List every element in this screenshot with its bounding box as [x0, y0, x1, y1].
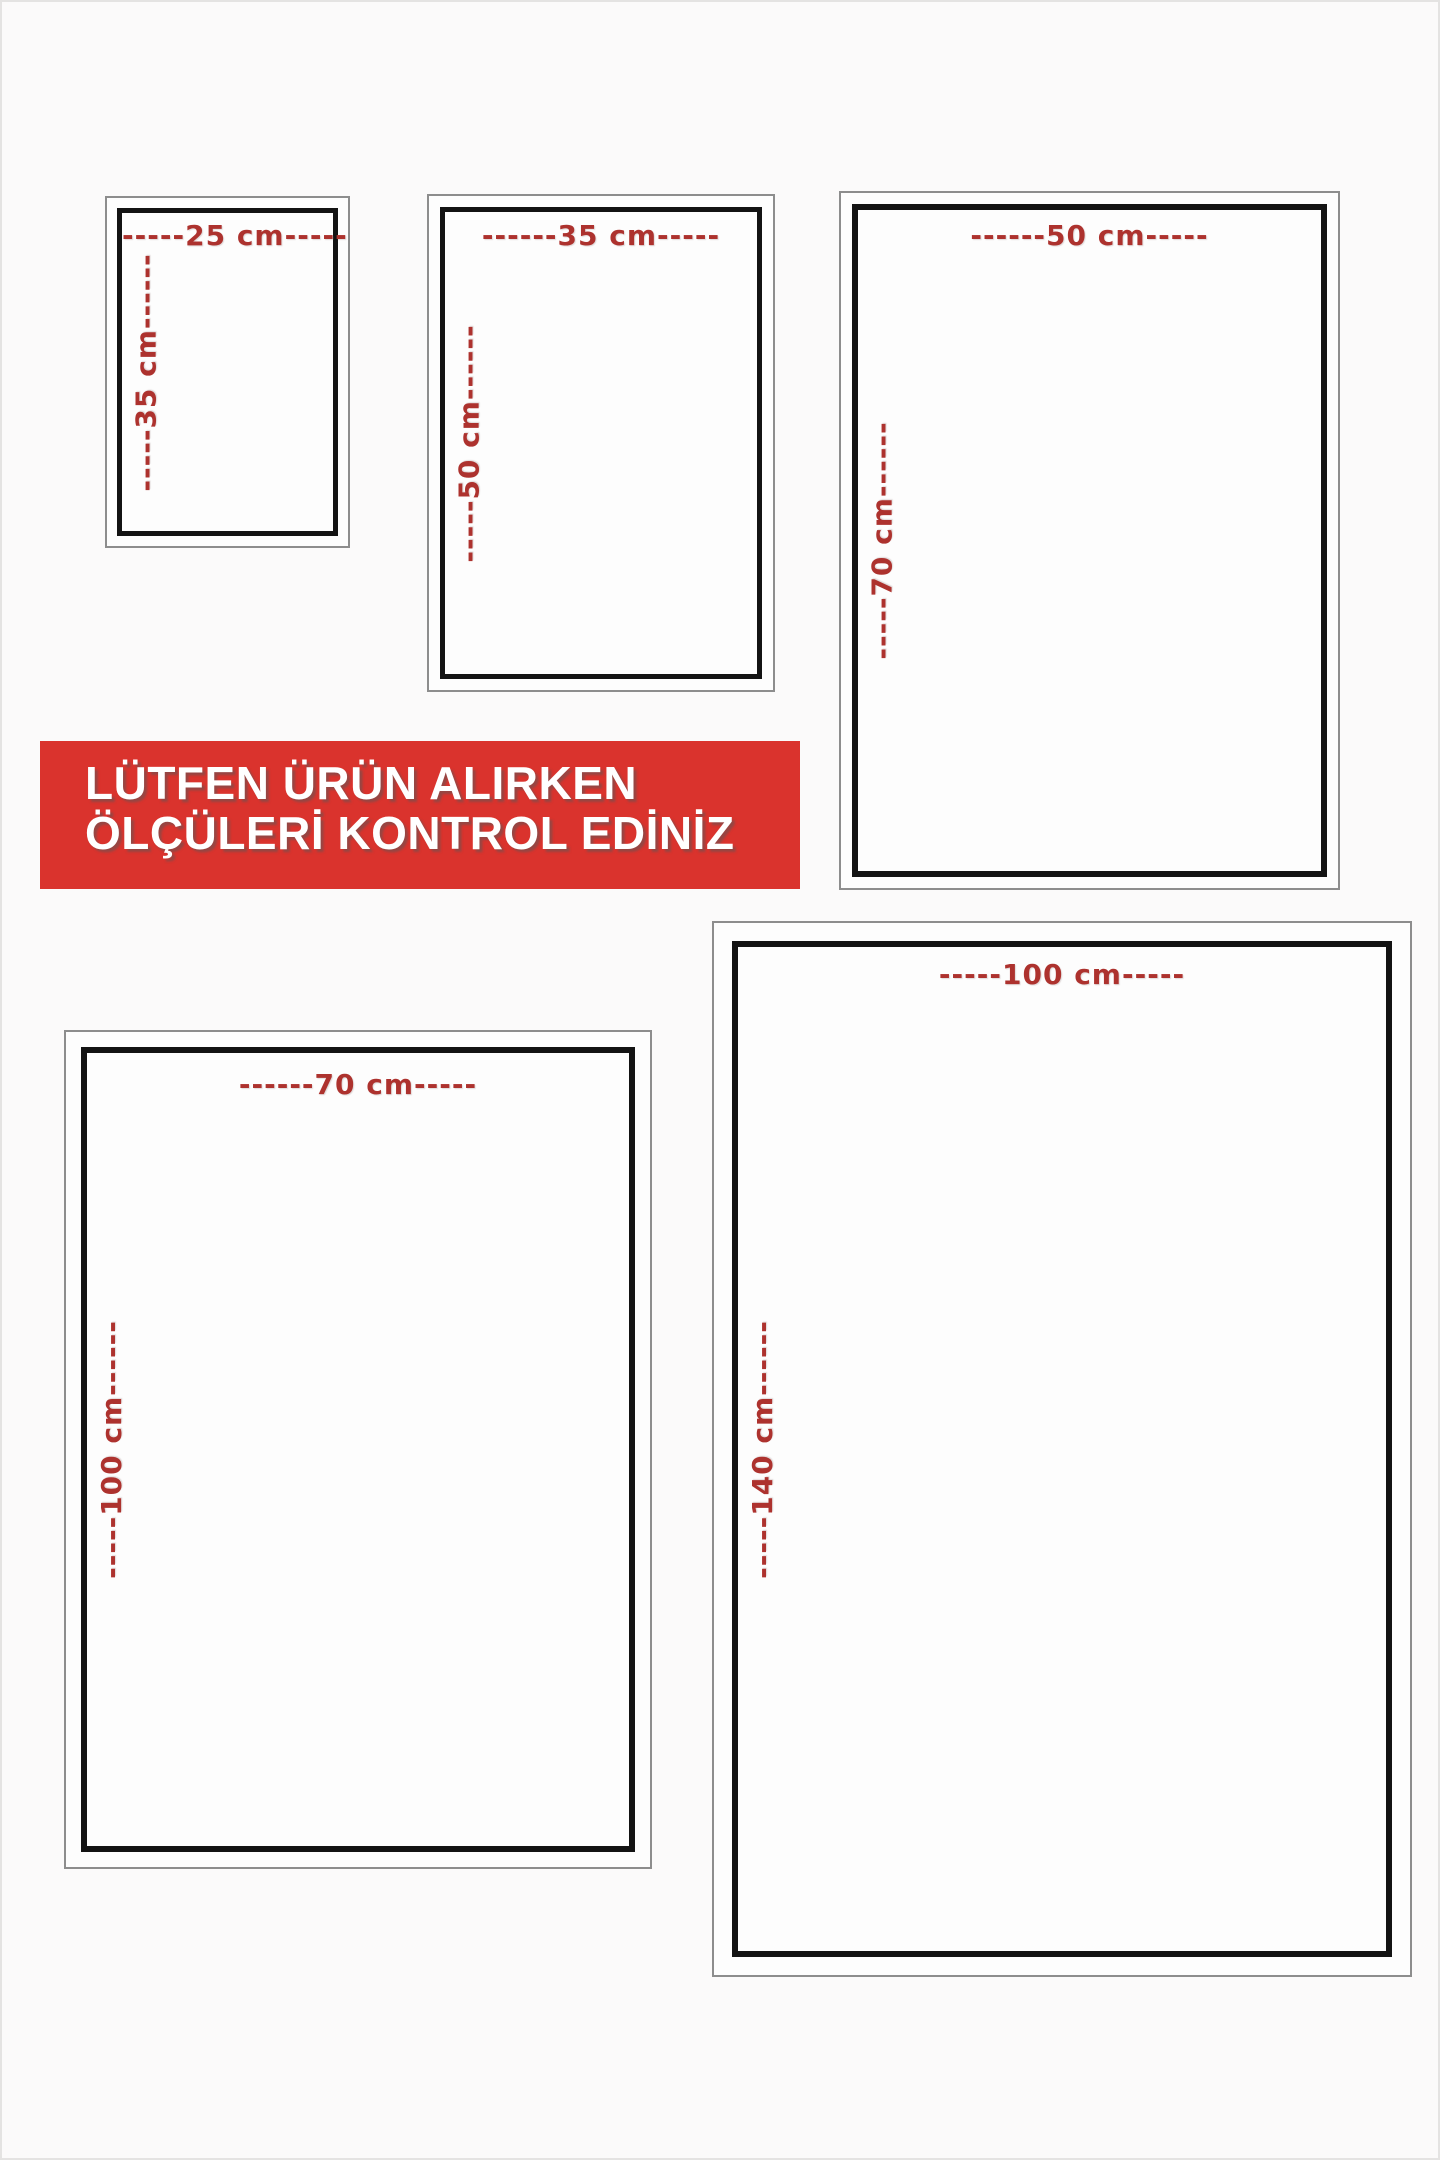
- width-dimension-label: ------50 cm-----: [858, 210, 1321, 252]
- width-dimension-label: ------70 cm-----: [87, 1053, 629, 1101]
- height-dimension-label-wrap: -----50 cm------: [447, 212, 491, 674]
- size-box-25x35: -----25 cm----- -----35 cm------: [105, 196, 350, 548]
- height-dimension-label: -----70 cm------: [866, 421, 899, 659]
- size-box-100x140: -----100 cm----- -----140 cm------: [712, 921, 1412, 1977]
- width-dimension-label: -----25 cm-----: [122, 213, 333, 252]
- inner-frame: ------70 cm----- -----100 cm------: [81, 1047, 635, 1852]
- warning-line-2: ÖLÇÜLERİ KONTROL EDİNİZ: [85, 808, 800, 858]
- inner-frame: ------35 cm----- -----50 cm------: [440, 207, 762, 679]
- height-dimension-label-wrap: -----100 cm------: [89, 1053, 133, 1846]
- height-dimension-label-wrap: -----35 cm------: [124, 213, 168, 531]
- inner-frame: ------50 cm----- -----70 cm------: [852, 204, 1327, 877]
- height-dimension-label-wrap: -----140 cm------: [740, 947, 784, 1951]
- height-dimension-label: -----100 cm------: [95, 1320, 128, 1579]
- size-box-50x70: ------50 cm----- -----70 cm------: [839, 191, 1340, 890]
- width-dimension-label: -----100 cm-----: [738, 947, 1386, 991]
- height-dimension-label: -----50 cm------: [453, 324, 486, 562]
- size-diagram-canvas: -----25 cm----- -----35 cm------ ------3…: [0, 0, 1440, 2160]
- height-dimension-label: -----140 cm------: [746, 1320, 779, 1579]
- width-dimension-label: ------35 cm-----: [445, 212, 757, 252]
- inner-frame: -----25 cm----- -----35 cm------: [117, 208, 338, 536]
- inner-frame: -----100 cm----- -----140 cm------: [732, 941, 1392, 1957]
- warning-line-1: LÜTFEN ÜRÜN ALIRKEN: [85, 758, 800, 808]
- size-warning-banner: LÜTFEN ÜRÜN ALIRKEN ÖLÇÜLERİ KONTROL EDİ…: [40, 741, 800, 889]
- size-box-35x50: ------35 cm----- -----50 cm------: [427, 194, 775, 692]
- height-dimension-label-wrap: -----70 cm------: [860, 210, 904, 871]
- height-dimension-label: -----35 cm------: [130, 253, 163, 491]
- size-box-70x100: ------70 cm----- -----100 cm------: [64, 1030, 652, 1869]
